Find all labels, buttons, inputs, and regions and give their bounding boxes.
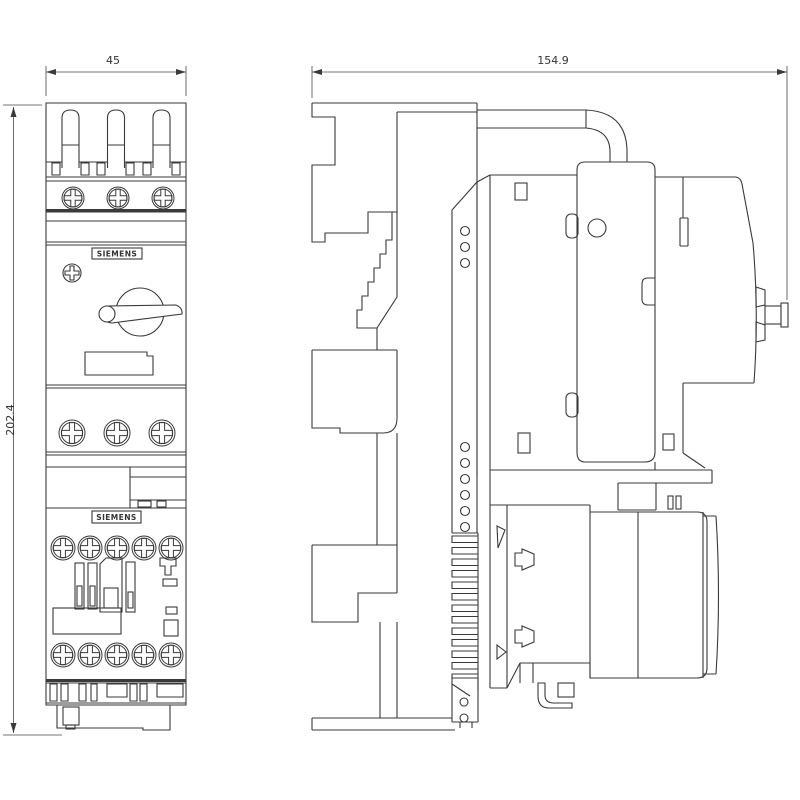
- front-height-label: 202.4: [4, 404, 17, 436]
- mounting-strip-foot: [452, 678, 478, 728]
- din-rail-channel: [490, 505, 520, 688]
- siemens-logo-bottom: SIEMENS: [92, 511, 141, 523]
- svg-text:SIEMENS: SIEMENS: [97, 250, 137, 259]
- contactor-block: [515, 512, 719, 708]
- svg-text:SIEMENS: SIEMENS: [96, 513, 136, 522]
- side-view: [312, 103, 788, 730]
- arrow-up-icon: [11, 107, 17, 117]
- line-terminal-screws: [62, 187, 174, 209]
- arrow-right-icon: [777, 69, 787, 75]
- ventilation-fins: [452, 533, 478, 690]
- rotary-head-profile: [642, 177, 788, 468]
- coil-terminal-top: [515, 549, 534, 570]
- front-height-dimension: 202.4: [3, 105, 62, 735]
- load-terminal-screws: [59, 420, 175, 446]
- supply-pins: [62, 110, 170, 168]
- arrow-left-icon: [312, 69, 322, 75]
- drawing-canvas: 45 202.4 154.9: [0, 0, 800, 800]
- bottom-terminal-band: [46, 679, 186, 703]
- contactor-screws-top: [51, 536, 183, 560]
- front-width-dimension: 45: [46, 54, 186, 96]
- mounting-strip: [452, 182, 478, 533]
- staircase-step-profile: [357, 212, 397, 328]
- contactor-screws-bottom: [51, 643, 183, 667]
- breaker-body: [477, 162, 712, 512]
- divider-lines: [46, 452, 186, 455]
- arrow-right-icon: [176, 69, 186, 75]
- reset-button: [160, 558, 176, 575]
- dimension-drawing: 45 202.4 154.9: [0, 0, 800, 800]
- siemens-logo-top: SIEMENS: [92, 248, 142, 259]
- rail-clip-bottom: [497, 645, 506, 659]
- divider-band: [46, 209, 186, 213]
- busbar-hook-arm: [477, 110, 627, 163]
- front-view: SIEMENS: [46, 103, 186, 730]
- arrow-left-icon: [46, 69, 56, 75]
- front-width-label: 45: [106, 54, 120, 67]
- rotary-switch-knob: [99, 288, 182, 336]
- divider-lines: [46, 385, 186, 388]
- latch-mechanism: [53, 558, 178, 636]
- coil-terminal-bottom: [515, 626, 534, 647]
- bottom-skirt: [57, 705, 170, 730]
- setting-window: [85, 352, 153, 375]
- junction-block: [46, 467, 186, 508]
- rail-clip-top: [497, 526, 505, 548]
- arrow-down-icon: [11, 723, 17, 733]
- divider-lines: [46, 221, 186, 245]
- switch-shaft-pin: [756, 287, 788, 342]
- side-depth-label: 154.9: [537, 54, 569, 67]
- adjustment-screw: [63, 264, 81, 282]
